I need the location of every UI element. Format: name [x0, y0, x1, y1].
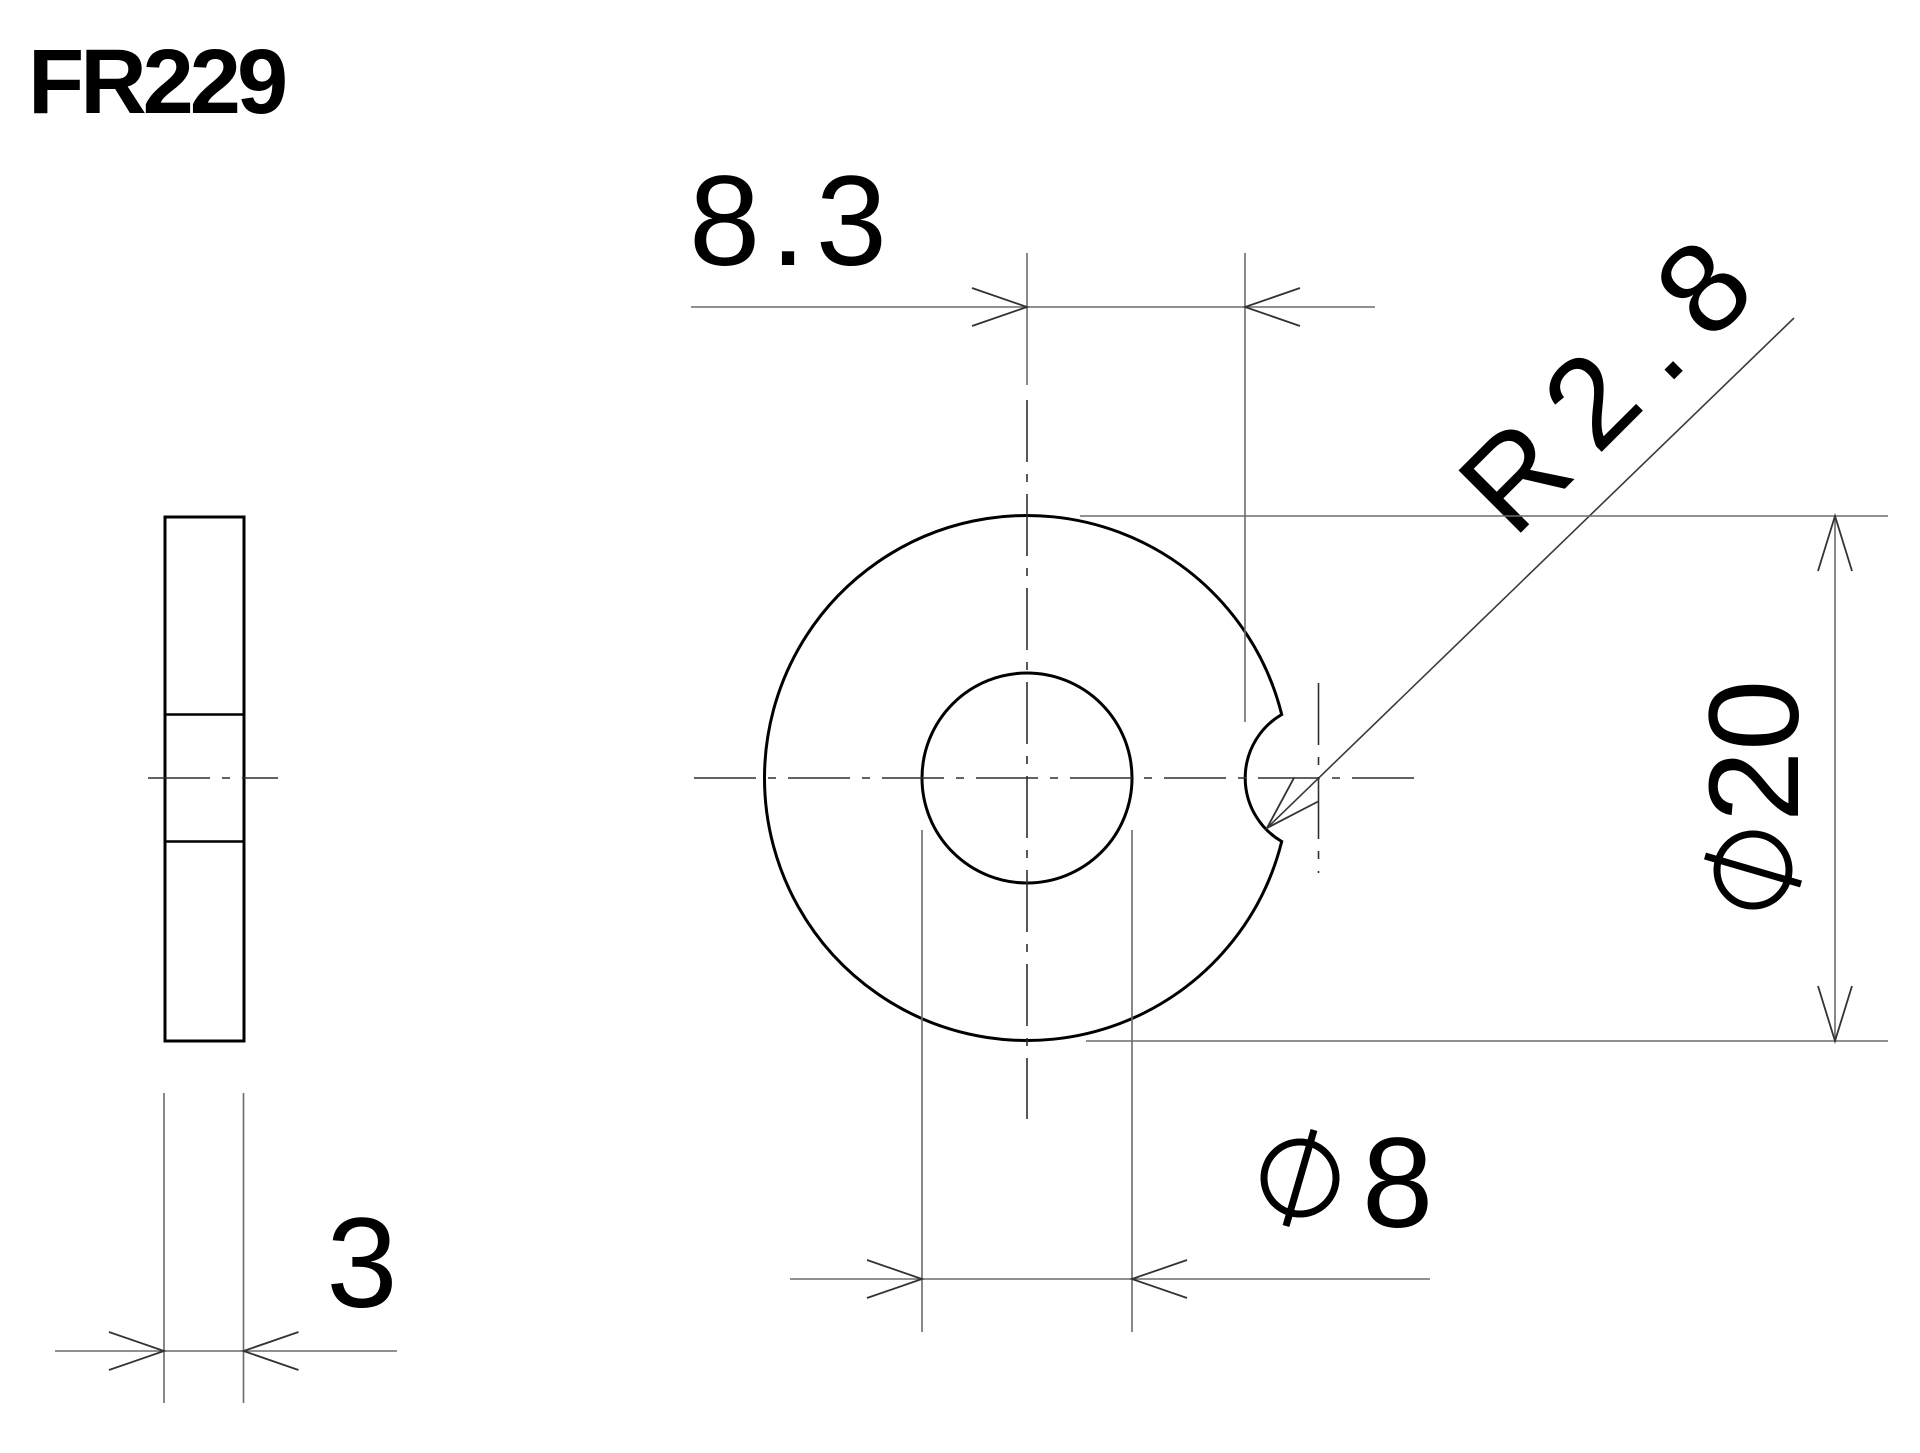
- front-view: [694, 400, 1415, 1119]
- dimension-thickness: 3: [55, 1093, 398, 1403]
- diameter-symbol: [1264, 1130, 1336, 1226]
- diameter-symbol: [1705, 834, 1801, 906]
- dimension-value-label: 8: [1362, 1112, 1433, 1255]
- technical-drawing-canvas: FR229 8.3 R2.8: [0, 0, 1920, 1453]
- side-view: [148, 517, 278, 1041]
- dimension-value-label: R2.8: [1432, 194, 1798, 560]
- side-view-outline: [165, 517, 244, 1041]
- dimension-offset-8-3: 8.3: [689, 150, 1375, 722]
- dimension-value-label: 8.3: [689, 150, 897, 293]
- dimension-value-label: 3: [326, 1192, 397, 1335]
- drawing-sheet: FR229 8.3 R2.8: [0, 0, 1920, 1453]
- dimension-value-label: 20: [1683, 680, 1826, 822]
- dimension-hole-diameter: 8: [790, 830, 1433, 1332]
- part-number-title: FR229: [28, 31, 285, 133]
